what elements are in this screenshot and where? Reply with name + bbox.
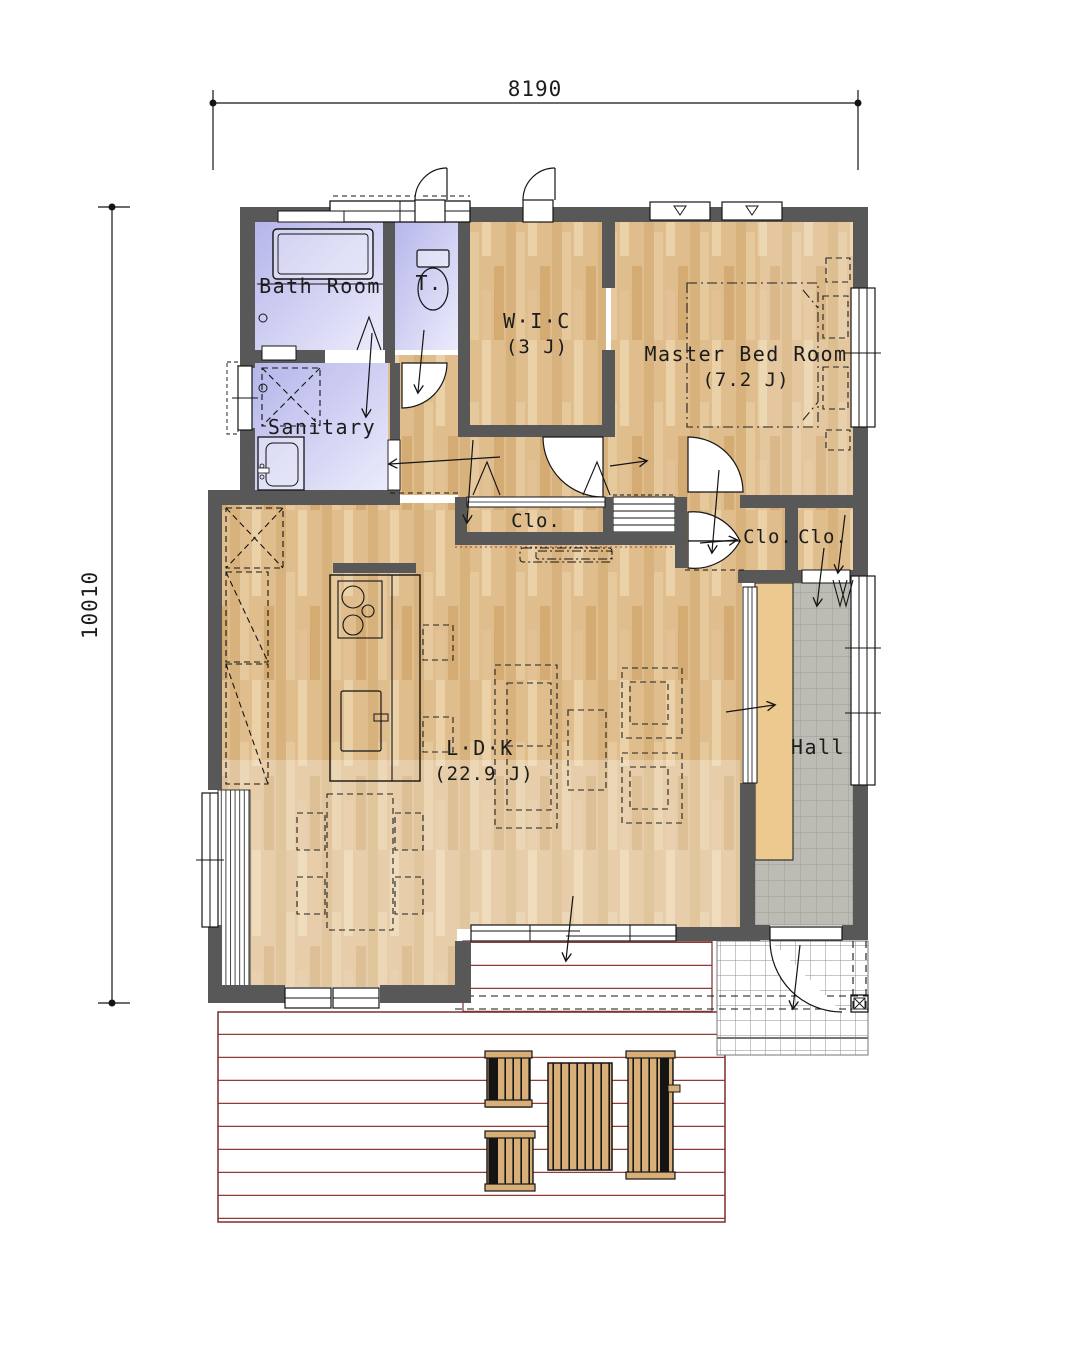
wall	[853, 785, 868, 940]
floorplan-drawing: 8190 10010 Bath Room T. Sanitary W·I·C (…	[0, 0, 1074, 1361]
room-area-master: (7.2 J)	[702, 369, 789, 391]
wall	[383, 222, 395, 363]
sliding-door-sanitary	[388, 440, 400, 490]
wall	[842, 925, 868, 940]
wall	[740, 783, 755, 927]
floor-board-strip	[218, 790, 250, 998]
room-label-ldk: L·D·K	[446, 736, 514, 760]
wall	[208, 985, 285, 1003]
kitchen-half-wall	[333, 563, 416, 573]
wall	[390, 363, 400, 440]
room-label-closet-right: Clo.	[798, 526, 848, 548]
vanity-icon	[258, 437, 304, 490]
floorplan-canvas: 8190 10010 Bath Room T. Sanitary W·I·C (…	[0, 0, 1074, 1361]
wall	[455, 497, 467, 532]
wall	[602, 222, 615, 288]
wall	[675, 497, 687, 568]
room-area-wic: (3 J)	[506, 336, 568, 358]
sliding-glass-door-deck	[471, 925, 676, 941]
room-label-bath: Bath Room	[259, 274, 381, 298]
wall	[240, 428, 255, 490]
linen-shelf	[613, 495, 675, 532]
room-label-hall: Hall	[791, 735, 845, 759]
wall	[240, 222, 255, 368]
wall	[455, 941, 471, 991]
wall	[740, 495, 868, 508]
wall	[738, 570, 802, 583]
room-area-ldk: (22.9 J)	[434, 763, 534, 785]
room-label-toilet: T.	[415, 271, 442, 295]
wall	[208, 490, 400, 505]
window-bathroom-top	[330, 201, 470, 222]
wood-deck-upper	[463, 941, 712, 1012]
wall	[602, 350, 615, 437]
wall	[740, 925, 770, 940]
room-label-sanitary: Sanitary	[268, 415, 376, 439]
wall	[853, 207, 868, 290]
wall	[455, 532, 675, 545]
dimension-left-label: 10010	[78, 571, 102, 639]
dimension-top-label: 8190	[508, 77, 563, 101]
window-master-right	[845, 288, 881, 427]
hall-wood-step	[755, 583, 793, 860]
wall	[458, 425, 615, 437]
window-master-top	[722, 202, 782, 220]
exterior-door-icon	[415, 168, 447, 222]
deck-chair	[485, 1131, 535, 1191]
faucet-counter-icon	[262, 346, 296, 360]
deck-chair	[485, 1051, 532, 1107]
window-hall-right	[845, 576, 881, 785]
room-label-master: Master Bed Room	[644, 342, 847, 366]
window-ldk-bottom	[285, 988, 379, 1008]
window-master-top	[650, 202, 710, 220]
sliding-door-hall-ldk	[743, 587, 757, 783]
wall	[458, 222, 470, 437]
wall	[208, 505, 222, 790]
exterior-door-icon	[523, 168, 555, 222]
deck-bench	[626, 1051, 680, 1179]
room-label-closet-mid: Clo.	[511, 510, 561, 532]
room-label-wic: W·I·C	[503, 309, 571, 333]
room-label-closet-left: Clo.	[743, 526, 793, 548]
deck-table	[548, 1063, 612, 1170]
bath-door-opening	[325, 350, 385, 363]
sliding-door-closet-mid	[467, 497, 605, 507]
sliding-door-closet-right	[802, 570, 850, 583]
